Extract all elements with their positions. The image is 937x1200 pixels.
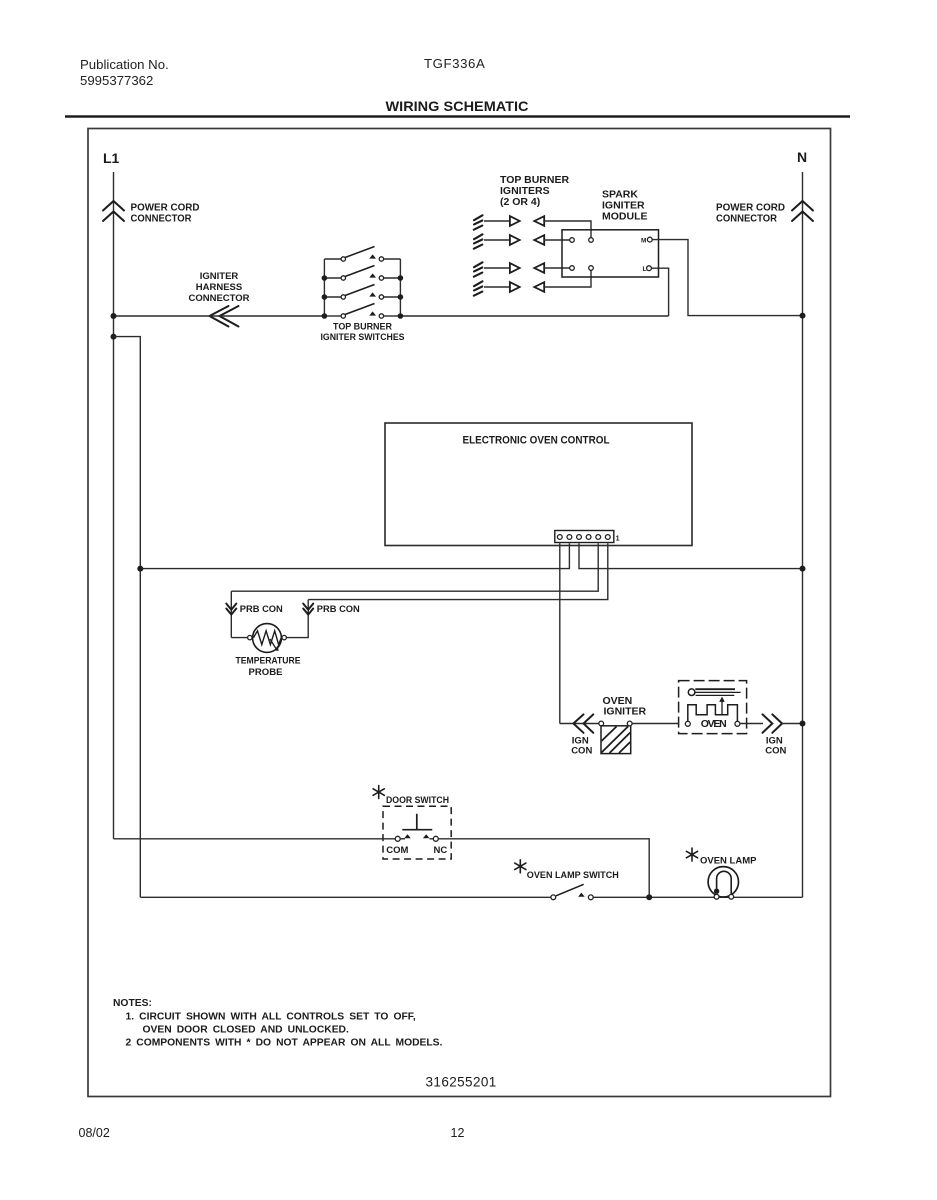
svg-text:12: 12 <box>451 1126 465 1140</box>
svg-text:M: M <box>641 238 646 245</box>
svg-text:DOOR SWITCH: DOOR SWITCH <box>386 795 449 806</box>
svg-text:TGF336A: TGF336A <box>424 56 485 71</box>
svg-text:OVEN LAMP SWITCH: OVEN LAMP SWITCH <box>527 870 619 881</box>
svg-text:CONNECTOR: CONNECTOR <box>131 213 192 225</box>
svg-text:TEMPERATURE: TEMPERATURE <box>236 656 301 667</box>
svg-text:OVEN: OVEN <box>701 718 727 730</box>
svg-text:IGNITER SWITCHES: IGNITER SWITCHES <box>321 332 405 343</box>
svg-text:ELECTRONIC OVEN CONTROL: ELECTRONIC OVEN CONTROL <box>463 435 610 447</box>
svg-text:CON: CON <box>571 746 592 757</box>
svg-text:1: 1 <box>616 536 620 543</box>
svg-text:NC: NC <box>434 845 448 856</box>
svg-text:OVEN LAMP: OVEN LAMP <box>700 856 757 867</box>
svg-text:Publication No.: Publication No. <box>80 57 169 72</box>
svg-text:NOTES:: NOTES: <box>113 998 152 1009</box>
svg-text:PRB CON: PRB CON <box>240 604 283 615</box>
svg-text:TOP BURNER: TOP BURNER <box>333 322 392 333</box>
svg-text:2 COMPONENTS WITH * DO NO: 2 COMPONENTS WITH * DO NOT APPEAR ON ALL… <box>126 1037 443 1048</box>
svg-text:CONNECTOR: CONNECTOR <box>716 213 777 225</box>
svg-text:316255201: 316255201 <box>426 1075 497 1090</box>
svg-text:(2 OR 4): (2 OR 4) <box>500 196 540 208</box>
svg-text:CON: CON <box>765 746 786 757</box>
svg-text:08/02: 08/02 <box>79 1126 110 1140</box>
svg-text:WIRING SCHEMATIC: WIRING SCHEMATIC <box>386 98 529 114</box>
svg-text:PROBE: PROBE <box>249 667 283 678</box>
svg-text:L1: L1 <box>103 150 120 166</box>
svg-text:PRB CON: PRB CON <box>317 604 360 615</box>
svg-text:IGNITER: IGNITER <box>200 271 239 282</box>
svg-text:5995377362: 5995377362 <box>80 73 153 88</box>
svg-text:1. CIRCUIT SHOWN WITH ALL: 1. CIRCUIT SHOWN WITH ALL CONTROLS SET T… <box>126 1011 416 1022</box>
svg-text:COM: COM <box>386 845 408 856</box>
svg-text:HARNESS: HARNESS <box>196 282 242 293</box>
svg-text:L: L <box>643 266 647 273</box>
svg-text:N: N <box>797 149 807 165</box>
svg-text:MODULE: MODULE <box>602 211 648 223</box>
svg-text:OVEN DOOR CLOSED AND UNLOC: OVEN DOOR CLOSED AND UNLOCKED. <box>143 1024 349 1035</box>
svg-text:IGNITER: IGNITER <box>604 706 647 718</box>
svg-text:CONNECTOR: CONNECTOR <box>188 293 249 304</box>
